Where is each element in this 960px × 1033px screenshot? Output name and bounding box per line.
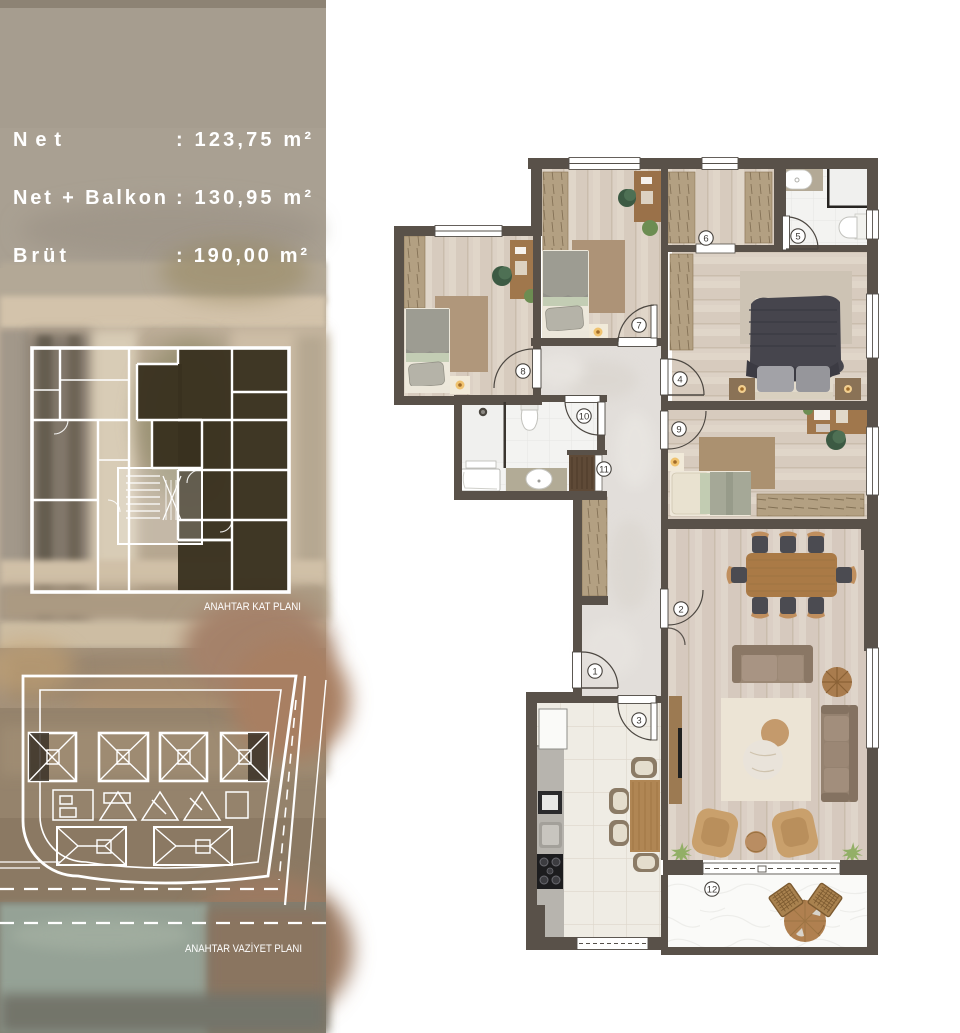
svg-text:8: 8 (520, 367, 525, 378)
svg-text:2: 2 (678, 605, 683, 616)
svg-text:10: 10 (579, 412, 590, 423)
svg-text:3: 3 (636, 716, 641, 727)
svg-text:4: 4 (677, 375, 682, 386)
svg-text:ANAHTAR KAT PLANI: ANAHTAR KAT PLANI (204, 601, 301, 613)
svg-text:7: 7 (636, 321, 641, 332)
svg-text:11: 11 (599, 465, 609, 476)
svg-text:6: 6 (703, 234, 708, 245)
svg-text:9: 9 (676, 425, 681, 436)
svg-text:ANAHTAR VAZİYET PLANI: ANAHTAR VAZİYET PLANI (185, 942, 302, 955)
svg-text:12: 12 (707, 885, 718, 896)
svg-text:5: 5 (795, 232, 800, 243)
svg-text:1: 1 (592, 667, 597, 678)
svg-text:Net: Net (13, 129, 61, 151)
svg-text:Net + Balkon: Net + Balkon (13, 187, 166, 209)
